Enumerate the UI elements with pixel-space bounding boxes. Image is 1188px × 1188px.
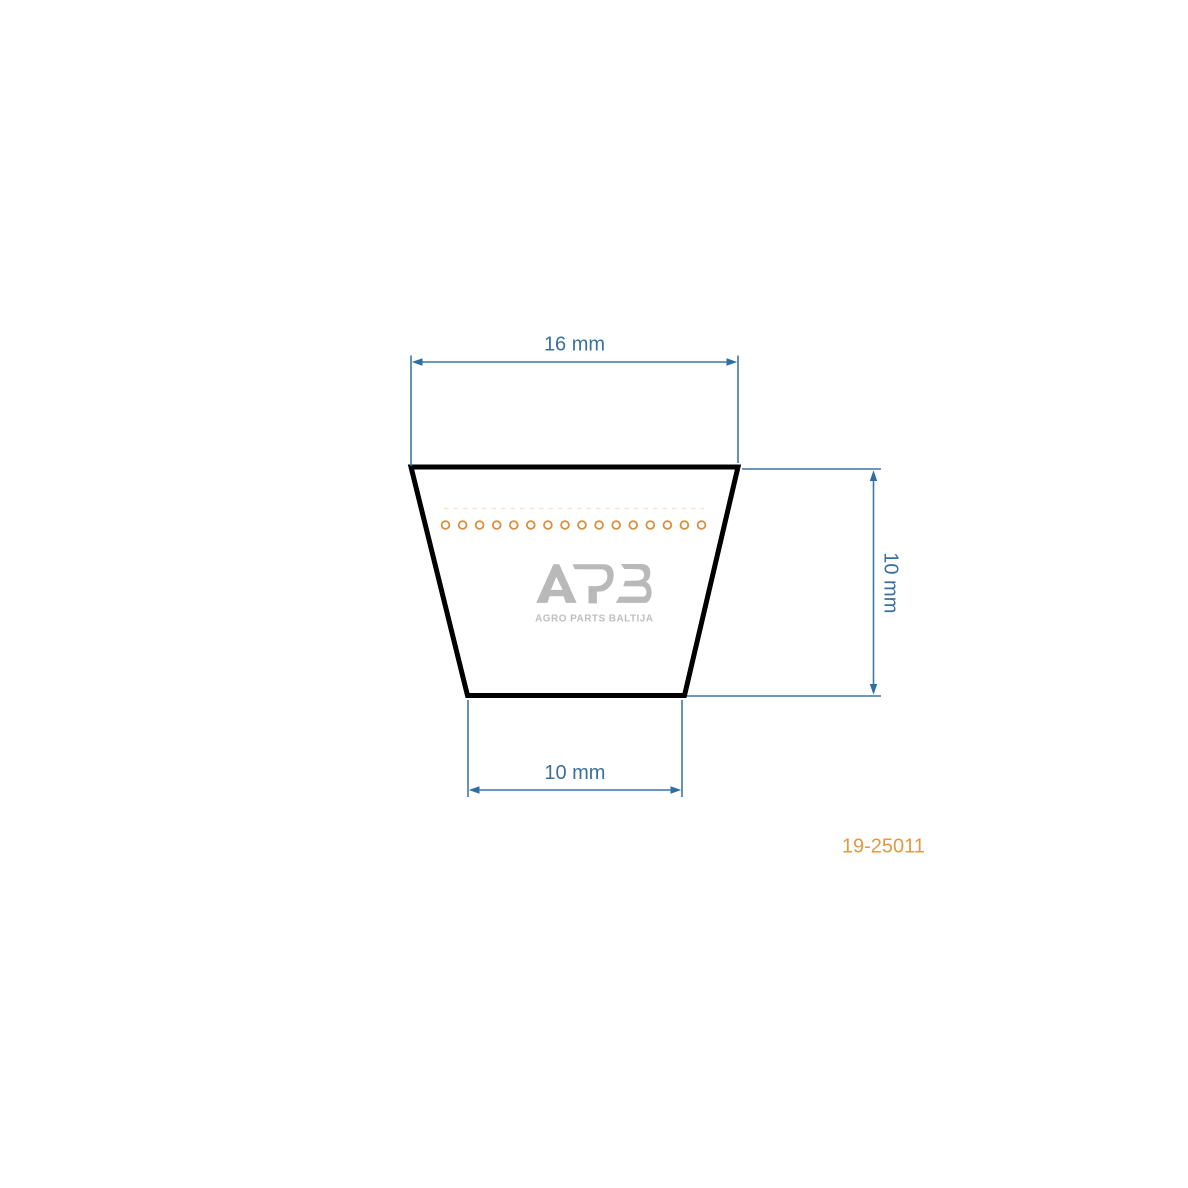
svg-text:16 mm: 16 mm <box>544 334 605 356</box>
svg-text:10 mm: 10 mm <box>880 552 902 613</box>
svg-text:10 mm: 10 mm <box>544 762 605 784</box>
svg-text:AGRO PARTS BALTIJA: AGRO PARTS BALTIJA <box>535 613 653 624</box>
svg-text:19-25011: 19-25011 <box>842 836 925 858</box>
